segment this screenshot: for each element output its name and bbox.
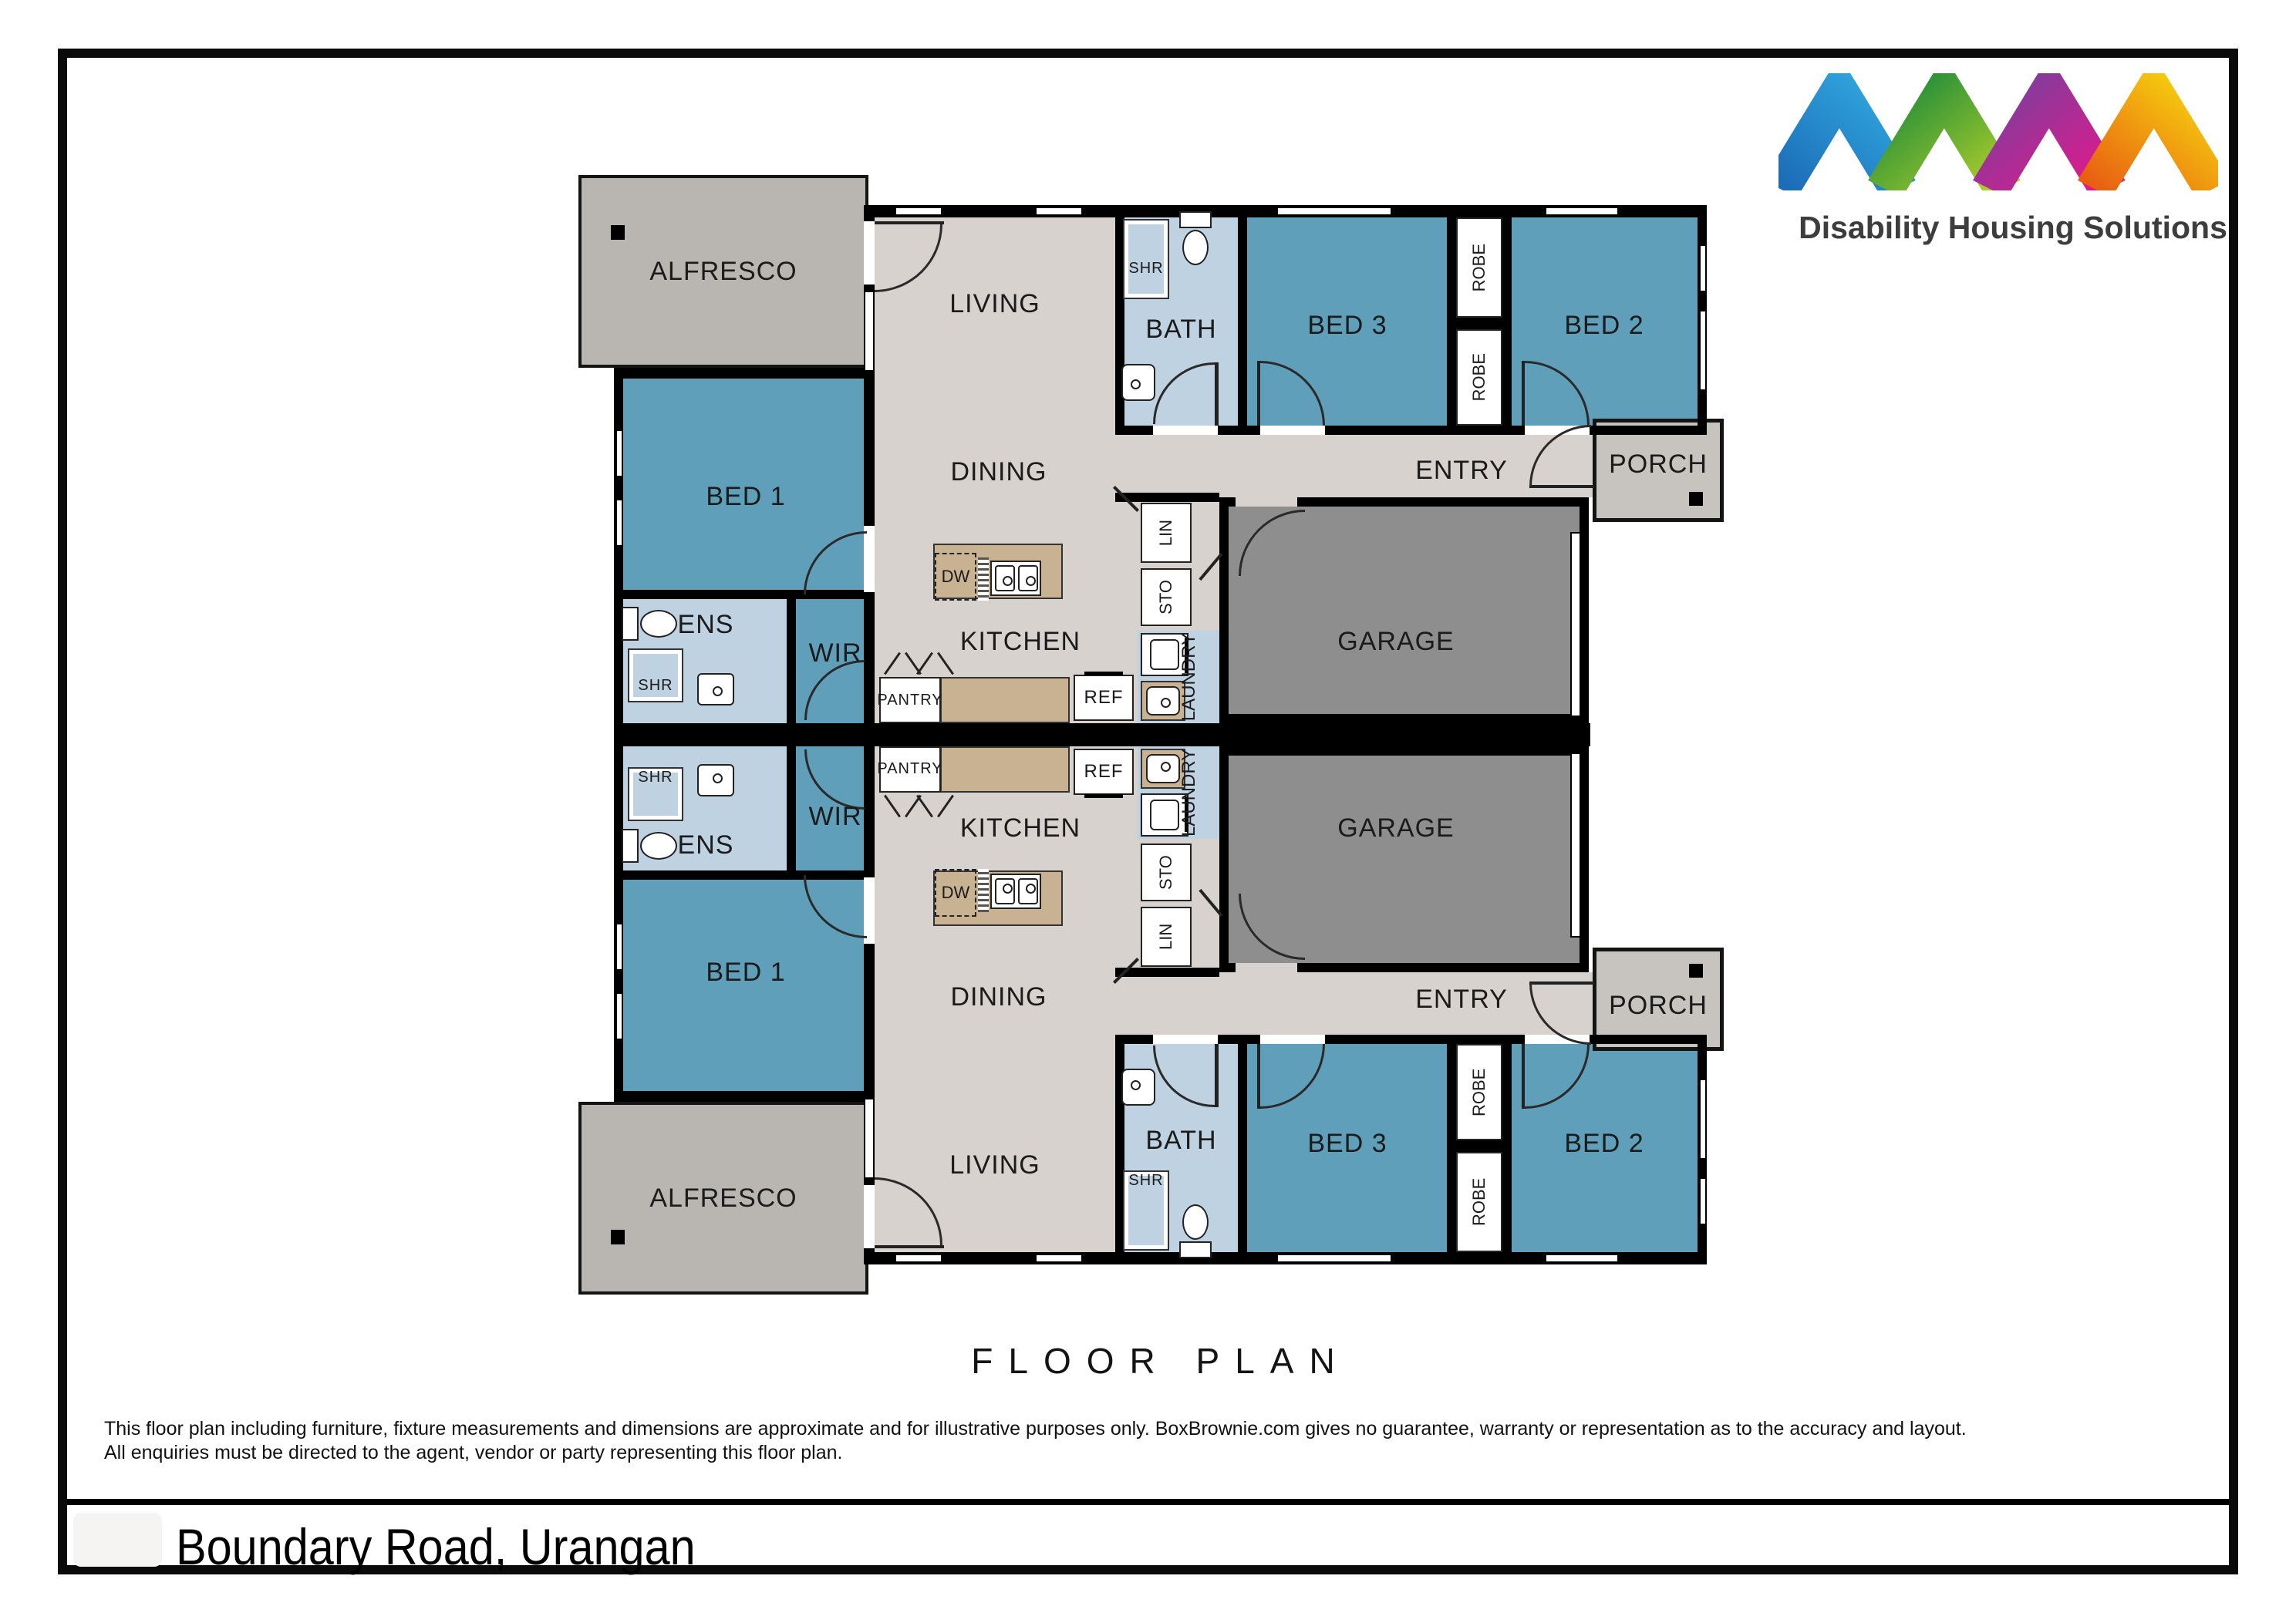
decor xyxy=(1131,379,1141,389)
wall-segment xyxy=(1238,1044,1247,1252)
ref-top-line xyxy=(1084,794,1123,798)
decor xyxy=(1131,1080,1141,1090)
dining-label: DINING xyxy=(906,976,1091,1019)
robe-label-box: ROBE xyxy=(1456,332,1502,423)
lin-label: LIN xyxy=(1156,924,1176,950)
garage-label: GARAGE xyxy=(1296,622,1496,661)
kitchen-sink xyxy=(990,874,1041,909)
ref-label: REF xyxy=(1084,761,1124,783)
wall-segment xyxy=(1115,968,1219,977)
disclaimer-line1: This floor plan including furniture, fix… xyxy=(104,1417,1994,1441)
wir-label: WIR xyxy=(793,634,878,672)
garage-label: GARAGE xyxy=(1296,809,1496,847)
closet-lin: LIN xyxy=(1141,503,1192,563)
window xyxy=(864,1098,875,1179)
ens-shower: SHR xyxy=(628,767,683,821)
garage-door xyxy=(1570,753,1581,938)
door-opening xyxy=(864,1185,875,1248)
dw-label: DW xyxy=(942,883,970,903)
plan-title: FLOOR PLAN xyxy=(887,1338,1435,1384)
door-leaf xyxy=(1215,362,1219,426)
window xyxy=(1035,207,1083,216)
refrigerator: REF xyxy=(1074,749,1134,795)
window xyxy=(615,499,623,547)
robe-label-box: ROBE xyxy=(1456,220,1502,315)
door-opening xyxy=(1236,497,1297,507)
dining-label: DINING xyxy=(906,451,1091,493)
ref-label: REF xyxy=(1084,687,1124,709)
dishwasher: DW xyxy=(935,869,976,917)
sto-label: STO xyxy=(1156,855,1176,890)
ref-top-line xyxy=(1084,672,1123,675)
laundry-label: LAUNDRY xyxy=(1178,633,1200,721)
porch-pillar xyxy=(1689,964,1703,978)
door-leaf xyxy=(875,1245,944,1248)
window xyxy=(615,992,623,1040)
kitchen-label: KITCHEN xyxy=(920,622,1121,661)
wall-segment xyxy=(1115,493,1219,502)
sink-bowl xyxy=(995,878,1015,904)
toilet-tank xyxy=(1179,1241,1212,1258)
decor xyxy=(1161,762,1171,772)
pantry: PANTRY xyxy=(879,677,941,723)
window xyxy=(615,923,623,971)
window xyxy=(1276,207,1392,216)
bed2-label: BED 2 xyxy=(1508,305,1701,347)
bath-vanity xyxy=(1121,1069,1155,1106)
decor xyxy=(1026,576,1036,586)
shr-label: SHR xyxy=(638,769,673,793)
robe-label: ROBE xyxy=(1469,1178,1489,1226)
kitchen-bench xyxy=(940,677,1070,723)
decor xyxy=(713,773,723,783)
floor-plan-page: Disability Housing Solutions xyxy=(0,0,2296,1623)
wall-segment xyxy=(1447,217,1456,435)
ens-label: ENS xyxy=(652,826,760,864)
toilet-bowl xyxy=(1182,230,1209,265)
wall-segment xyxy=(1456,318,1502,329)
disclaimer-line2: All enquiries must be directed to the ag… xyxy=(104,1441,1994,1465)
window xyxy=(1699,1177,1707,1225)
dishwasher: DW xyxy=(935,553,976,601)
robe-label: ROBE xyxy=(1469,1068,1489,1116)
living-label: LIVING xyxy=(902,1144,1087,1187)
robe-label: ROBE xyxy=(1469,353,1489,401)
lin-label: LIN xyxy=(1156,520,1176,546)
sink-drainer xyxy=(978,869,989,912)
alfresco-pillar xyxy=(611,1230,625,1244)
window xyxy=(864,291,875,372)
toilet-tank xyxy=(1179,211,1212,228)
wall-segment xyxy=(1456,1140,1502,1152)
brand-name: Disability Housing Solutions xyxy=(1789,207,2237,248)
decor xyxy=(1026,884,1036,894)
pantry-label: PANTRY xyxy=(877,761,942,779)
window xyxy=(1545,207,1619,216)
decor xyxy=(1161,698,1171,708)
sto-label: STO xyxy=(1156,580,1176,615)
ens-vanity xyxy=(697,673,734,705)
door-leaf xyxy=(1215,1044,1219,1107)
porch-label: PORCH xyxy=(1596,441,1720,487)
kitchen-bench xyxy=(940,746,1070,793)
bed1-label: BED 1 xyxy=(646,476,846,518)
wall-segment xyxy=(614,1091,868,1102)
shr-label: SHR xyxy=(1128,1172,1163,1210)
wall-segment xyxy=(1447,1035,1456,1252)
pantry-label: PANTRY xyxy=(877,692,942,709)
bed3-label: BED 3 xyxy=(1251,1123,1444,1165)
dwelling-unit: LIN STO DW PANTRY REF xyxy=(578,746,1751,1295)
wall-segment xyxy=(614,368,868,379)
brand-logo xyxy=(1778,73,2218,190)
entry-label: ENTRY xyxy=(1357,451,1566,490)
robe-label: ROBE xyxy=(1469,244,1489,291)
laundry-label-box: LAUNDRY xyxy=(1172,742,1206,843)
porch-pillar xyxy=(1689,492,1703,506)
ens-shower: SHR xyxy=(628,648,683,702)
wir-label: WIR xyxy=(793,797,878,836)
window xyxy=(1276,1254,1392,1263)
entry-label: ENTRY xyxy=(1357,980,1566,1019)
title-separator xyxy=(67,1499,2229,1505)
address-title: Boundary Road, Urangan xyxy=(176,1517,696,1576)
disclaimer: This floor plan including furniture, fix… xyxy=(104,1417,1994,1465)
dw-label: DW xyxy=(942,567,970,587)
ens-vanity xyxy=(697,764,734,796)
window xyxy=(895,207,942,216)
decor xyxy=(713,686,723,696)
kitchen-label: KITCHEN xyxy=(920,809,1121,847)
logo-zigzag-icon xyxy=(1778,73,2218,190)
kitchen-sink xyxy=(990,561,1041,596)
toilet-bowl xyxy=(1182,1204,1209,1240)
alfresco-pillar xyxy=(611,225,625,240)
toilet-tank xyxy=(622,607,639,641)
door-opening xyxy=(1260,1035,1325,1044)
door-opening xyxy=(1260,426,1325,435)
party-wall xyxy=(614,723,1590,746)
sink-drainer xyxy=(978,557,989,601)
shr-label: SHR xyxy=(638,677,673,701)
door-opening xyxy=(1153,1035,1218,1044)
bath-shower: SHR xyxy=(1123,219,1169,299)
shr-label: SHR xyxy=(1128,260,1163,298)
window xyxy=(1545,1254,1619,1263)
closet-sto: STO xyxy=(1141,843,1192,901)
door-opening xyxy=(1236,963,1297,972)
ens-label: ENS xyxy=(652,605,760,644)
bed1-label: BED 1 xyxy=(646,951,846,994)
window xyxy=(895,1254,942,1263)
laundry-label-box: LAUNDRY xyxy=(1172,626,1206,728)
door-opening xyxy=(1153,426,1218,435)
alfresco-label: ALFRESCO xyxy=(608,248,839,295)
toilet-tank xyxy=(622,829,639,863)
alfresco-label: ALFRESCO xyxy=(608,1175,839,1221)
sink-bowl xyxy=(1018,565,1038,591)
bath-label: BATH xyxy=(1124,310,1238,349)
closet-sto: STO xyxy=(1141,568,1192,626)
pantry: PANTRY xyxy=(879,746,941,793)
window xyxy=(1035,1254,1083,1263)
robe-label-box: ROBE xyxy=(1456,1154,1502,1250)
bed2-label: BED 2 xyxy=(1508,1123,1701,1165)
laundry-label: LAUNDRY xyxy=(1178,749,1200,837)
refrigerator: REF xyxy=(1074,675,1134,721)
garage-door xyxy=(1570,532,1581,717)
sink-bowl xyxy=(995,565,1015,591)
wall-segment xyxy=(1238,217,1247,426)
window xyxy=(615,429,623,477)
decor xyxy=(2095,92,2213,189)
address-number-blur xyxy=(73,1513,162,1567)
decor xyxy=(1003,884,1013,894)
sink-bowl xyxy=(1018,878,1038,904)
window xyxy=(1699,244,1707,292)
bed3-label: BED 3 xyxy=(1251,305,1444,347)
dwelling-unit: LIN STO DW PANTRY REF xyxy=(578,175,1751,723)
bath-shower: SHR xyxy=(1123,1170,1169,1251)
door-opening xyxy=(864,221,875,285)
porch-label: PORCH xyxy=(1596,982,1720,1029)
robe-label-box: ROBE xyxy=(1456,1046,1502,1138)
closet-lin: LIN xyxy=(1141,907,1192,967)
bath-label: BATH xyxy=(1124,1121,1238,1160)
decor xyxy=(1003,576,1013,586)
bath-vanity xyxy=(1121,364,1155,401)
living-label: LIVING xyxy=(902,283,1087,325)
